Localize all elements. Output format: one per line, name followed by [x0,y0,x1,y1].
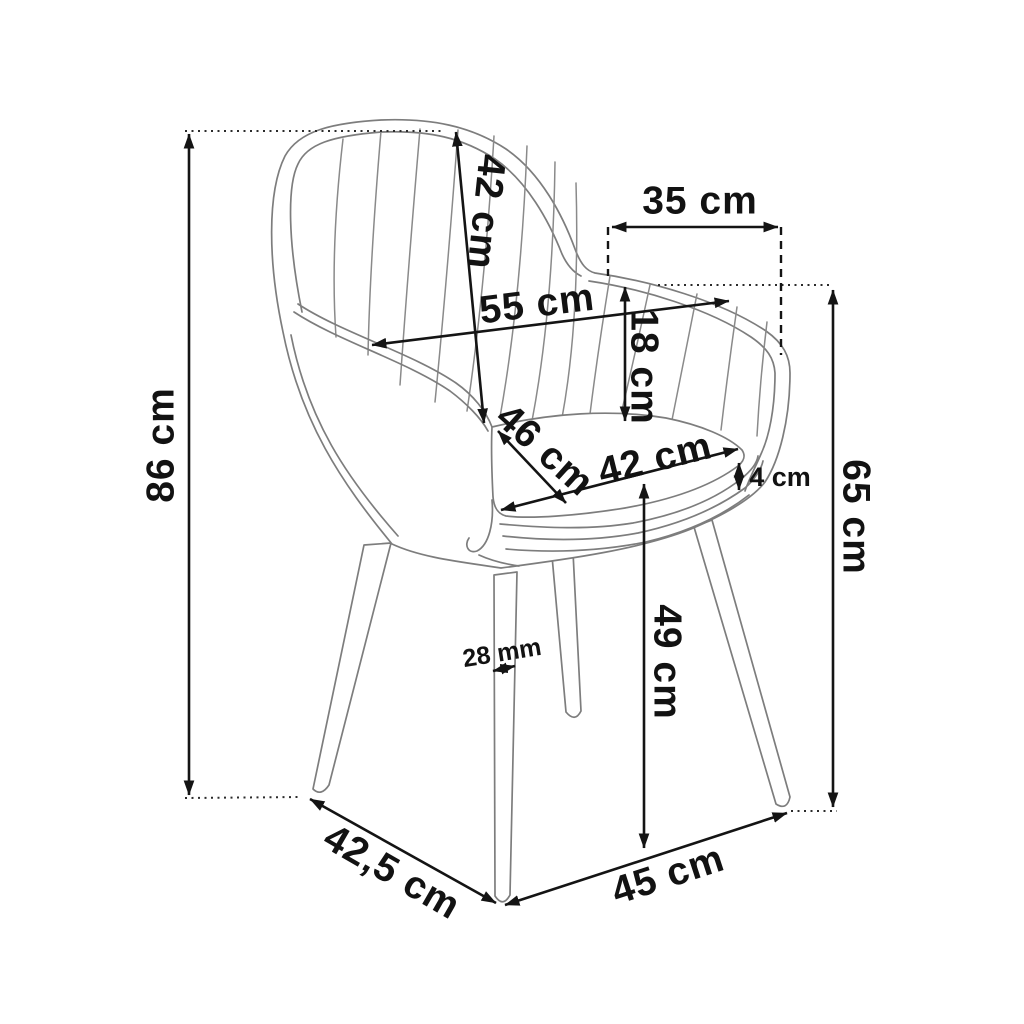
diagram-canvas: 86 cm 42 cm 35 cm 55 cm 18 cm 65 cm 46 c… [0,0,1024,1024]
chair-leg-rear-left [313,543,391,792]
chair-leg-front-right [694,520,790,806]
chair-drawing [272,120,790,902]
label-leg-thickness: 28 mm [461,633,544,673]
label-seat-to-armrest: 18 cm [623,309,666,425]
chair-leg-front-left [494,572,517,902]
label-seat-height: 49 cm [646,604,689,720]
label-armrest-height: 65 cm [835,459,878,575]
chair-dimension-diagram: 86 cm 42 cm 35 cm 55 cm 18 cm 65 cm 46 c… [0,0,1024,1024]
label-overall-height: 86 cm [140,387,183,503]
floor-left-dotted-line [185,797,302,798]
label-base-depth: 42,5 cm [316,816,467,928]
label-cushion-thickness: 4 cm [749,462,811,492]
label-base-width: 45 cm [606,837,729,914]
chair-leg-rear-right [552,552,581,717]
label-between-armrests: 35 cm [642,180,758,223]
